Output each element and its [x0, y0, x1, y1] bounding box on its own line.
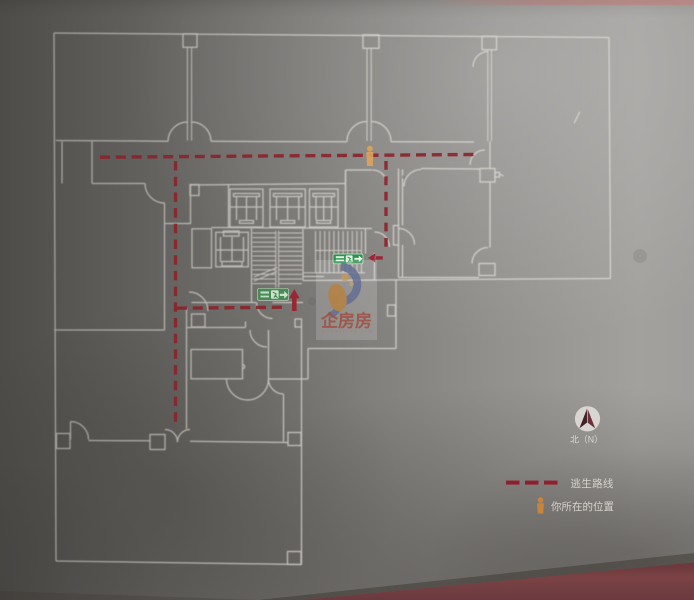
svg-text:Q I F A N G F A N G · C O M: Q I F A N G F A N G · C O M — [321, 330, 372, 334]
svg-text:逃生路线: 逃生路线 — [571, 477, 614, 490]
svg-text:北（N）: 北（N） — [570, 435, 603, 445]
svg-text:你所在的位置: 你所在的位置 — [551, 500, 614, 513]
svg-text:企房房: 企房房 — [320, 311, 372, 331]
